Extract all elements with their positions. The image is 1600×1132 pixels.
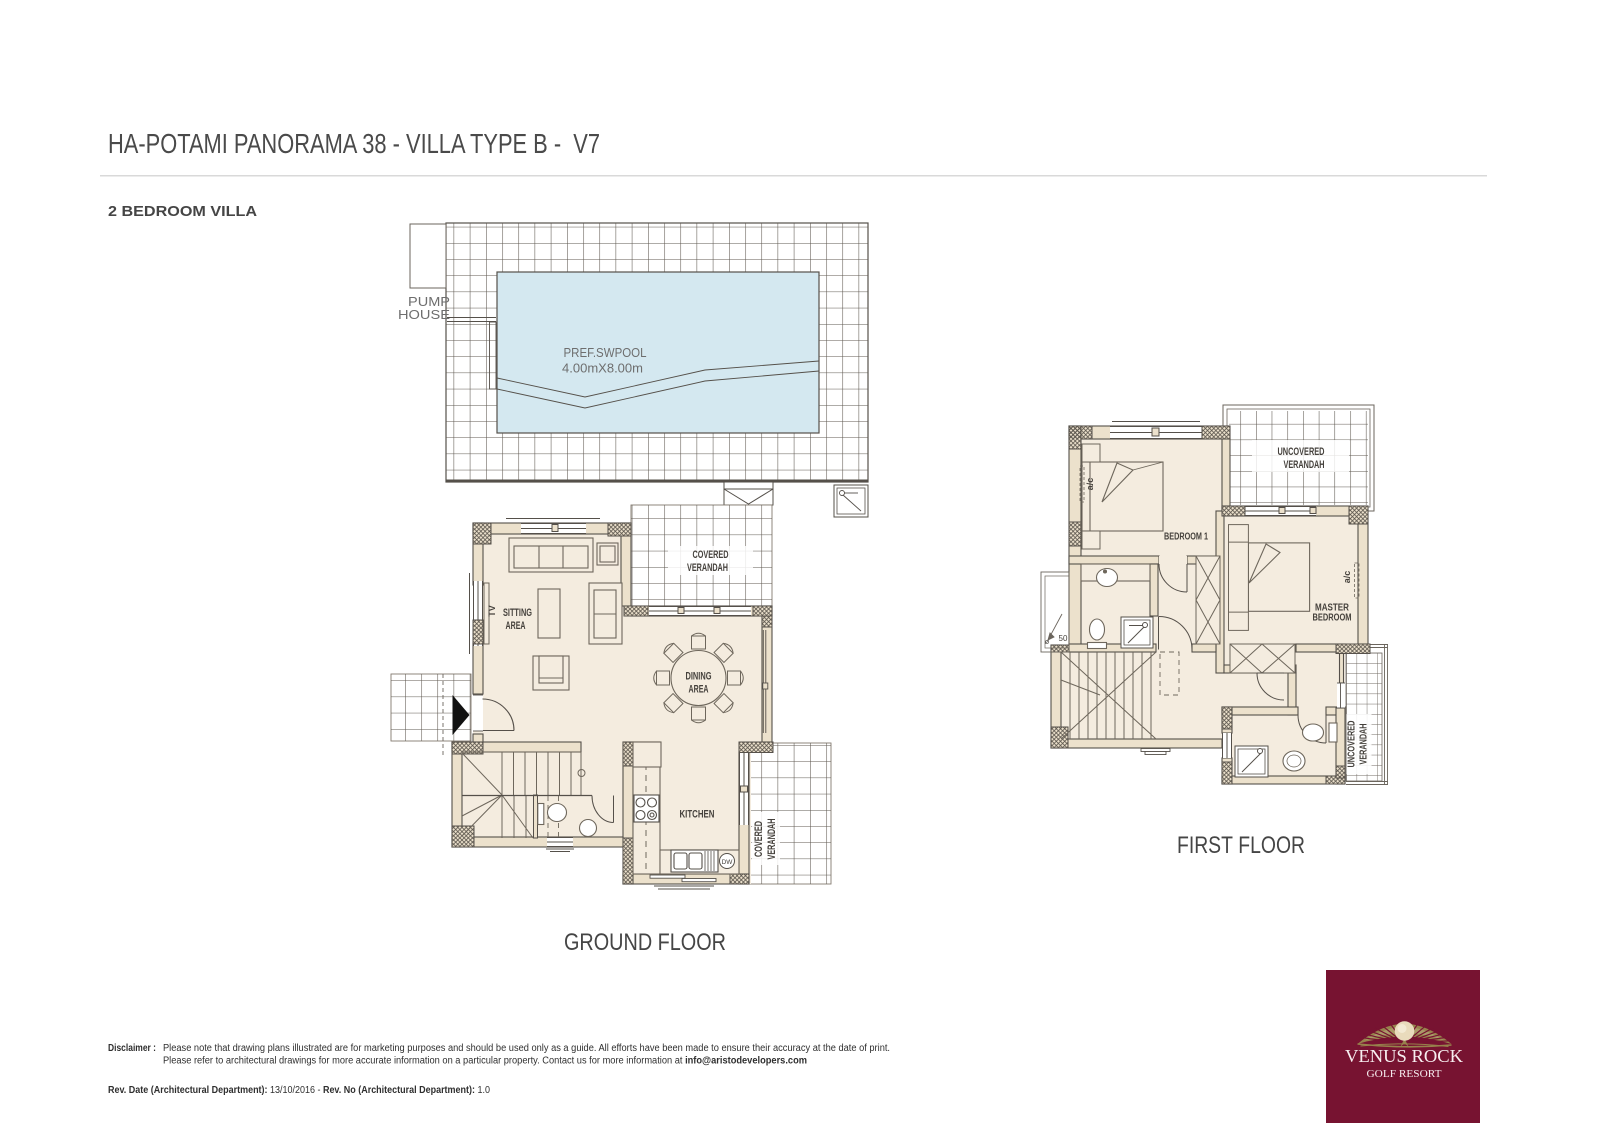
svg-text:VERANDAH: VERANDAH: [1284, 459, 1325, 471]
svg-text:Rev. Date (Architectural Depar: Rev. Date (Architectural Department): 13…: [108, 1085, 490, 1096]
svg-text:GOLF RESORT: GOLF RESORT: [1367, 1068, 1442, 1080]
svg-text:UNCOVERED: UNCOVERED: [1346, 720, 1358, 767]
svg-text:GROUND FLOOR: GROUND FLOOR: [564, 929, 726, 956]
svg-text:BEDROOM 1: BEDROOM 1: [1164, 531, 1208, 543]
svg-text:a/c: a/c: [1085, 478, 1095, 491]
svg-text:BEDROOM: BEDROOM: [1313, 612, 1352, 624]
svg-text:TV: TV: [487, 605, 497, 617]
svg-text:AREA: AREA: [689, 684, 709, 696]
svg-text:PREF.SWPOOL: PREF.SWPOOL: [564, 345, 647, 360]
svg-text:AREA: AREA: [506, 620, 526, 632]
svg-text:KITCHEN: KITCHEN: [680, 809, 715, 821]
svg-text:COVERED: COVERED: [693, 549, 729, 561]
svg-text:VERANDAH: VERANDAH: [687, 562, 728, 574]
svg-text:DW: DW: [722, 859, 734, 866]
svg-text:50: 50: [1059, 634, 1068, 643]
svg-text:SITTING: SITTING: [503, 607, 532, 619]
svg-text:UNCOVERED: UNCOVERED: [1278, 446, 1325, 458]
svg-text:COVERED: COVERED: [753, 821, 765, 857]
svg-text:2 BEDROOM VILLA: 2 BEDROOM VILLA: [108, 203, 257, 220]
svg-text:VENUS ROCK: VENUS ROCK: [1345, 1046, 1463, 1066]
svg-text:FIRST FLOOR: FIRST FLOOR: [1177, 832, 1305, 859]
svg-text:4.00mX8.00m: 4.00mX8.00m: [562, 361, 643, 376]
svg-text:Please refer to architectural: Please refer to architectural drawings f…: [163, 1056, 807, 1067]
svg-text:HOUSE: HOUSE: [398, 307, 450, 322]
svg-text:ø: ø: [1045, 639, 1050, 646]
svg-text:Disclaimer :: Disclaimer :: [108, 1043, 156, 1054]
svg-text:DINING: DINING: [686, 671, 712, 683]
svg-text:VERANDAH: VERANDAH: [766, 818, 778, 859]
svg-text:HA-POTAMI PANORAMA 38 - VILLA: HA-POTAMI PANORAMA 38 - VILLA TYPE B - V…: [108, 128, 600, 159]
svg-text:Please note that drawing plans: Please note that drawing plans illustrat…: [163, 1043, 890, 1054]
svg-text:VERANDAH: VERANDAH: [1358, 724, 1370, 765]
svg-text:a/c: a/c: [1342, 571, 1352, 584]
